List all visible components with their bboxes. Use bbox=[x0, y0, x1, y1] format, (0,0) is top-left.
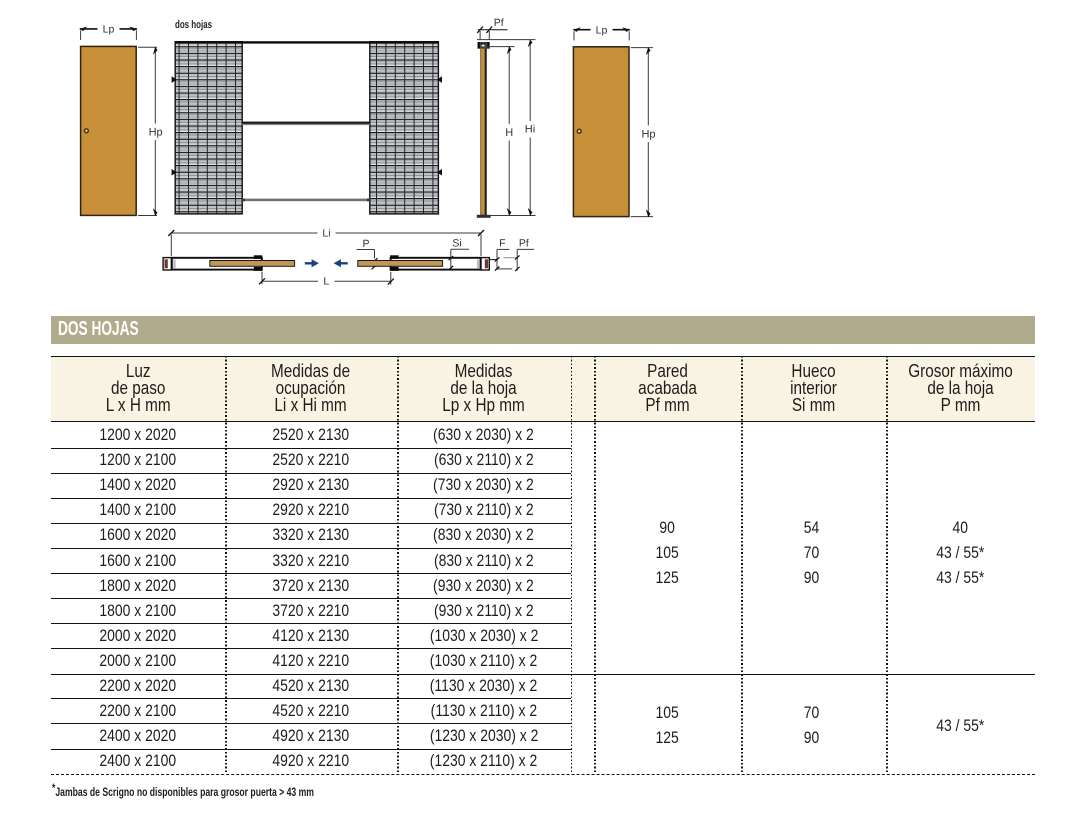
svg-text:Hp: Hp bbox=[149, 127, 163, 139]
svg-text:Hp: Hp bbox=[641, 129, 655, 141]
svg-text:Lp: Lp bbox=[596, 24, 608, 36]
svg-text:dos hojas: dos hojas bbox=[175, 19, 212, 31]
svg-text:P: P bbox=[362, 238, 369, 250]
svg-text:F: F bbox=[499, 237, 505, 249]
svg-text:Pf: Pf bbox=[494, 17, 504, 29]
svg-text:H: H bbox=[505, 127, 513, 139]
svg-text:Li: Li bbox=[322, 228, 330, 240]
svg-text:L: L bbox=[323, 275, 329, 287]
svg-text:Si: Si bbox=[452, 237, 461, 249]
svg-text:Lp: Lp bbox=[103, 24, 115, 36]
svg-text:Hi: Hi bbox=[525, 123, 535, 135]
svg-text:Pf: Pf bbox=[519, 237, 529, 249]
